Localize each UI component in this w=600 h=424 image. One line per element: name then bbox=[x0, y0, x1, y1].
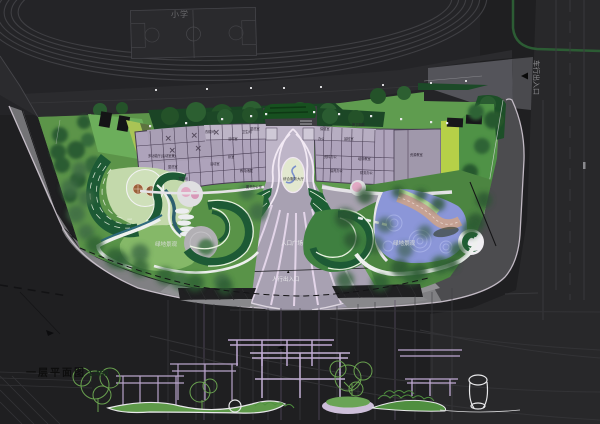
svg-text:卫生间: 卫生间 bbox=[242, 129, 252, 134]
svg-text:绿地景观: 绿地景观 bbox=[155, 240, 178, 248]
svg-text:办公: 办公 bbox=[318, 136, 325, 141]
svg-text:1:450: 1:450 bbox=[88, 369, 109, 378]
svg-text:一层平面图: 一层平面图 bbox=[26, 367, 86, 379]
svg-text:培训教室: 培训教室 bbox=[358, 156, 371, 161]
svg-text:入口广场: 入口广场 bbox=[281, 239, 304, 247]
svg-text:卧室: 卧室 bbox=[228, 154, 234, 159]
svg-text:衣帽间: 衣帽间 bbox=[205, 129, 215, 134]
svg-text:保健室: 保健室 bbox=[320, 126, 330, 131]
svg-text:图书办公室: 图书办公室 bbox=[246, 184, 262, 189]
svg-text:资料办公: 资料办公 bbox=[324, 154, 338, 159]
svg-text:财务办公: 财务办公 bbox=[360, 170, 374, 175]
svg-text:教具储藏: 教具储藏 bbox=[240, 168, 254, 173]
svg-text:车行出入口: 车行出入口 bbox=[532, 60, 541, 95]
svg-text:卫生间: 卫生间 bbox=[178, 176, 188, 181]
svg-text:多功能厅(活动室兼): 多功能厅(活动室兼) bbox=[148, 153, 176, 158]
svg-text:人行出入口: 人行出入口 bbox=[272, 275, 300, 283]
svg-text:资源教室: 资源教室 bbox=[410, 152, 423, 157]
svg-text:综合服务大厅: 综合服务大厅 bbox=[283, 176, 304, 181]
svg-text:绿地景观: 绿地景观 bbox=[393, 239, 416, 247]
svg-text:警卫隔离: 警卫隔离 bbox=[352, 122, 365, 127]
svg-text:活动室: 活动室 bbox=[210, 161, 220, 166]
svg-text:活动室: 活动室 bbox=[228, 136, 238, 141]
svg-text:小学: 小学 bbox=[171, 9, 189, 19]
svg-text:晨检室: 晨检室 bbox=[344, 136, 354, 141]
svg-text:盥洗室: 盥洗室 bbox=[168, 164, 178, 169]
svg-text:▲: ▲ bbox=[286, 269, 290, 274]
svg-text:保育办公: 保育办公 bbox=[330, 168, 344, 173]
